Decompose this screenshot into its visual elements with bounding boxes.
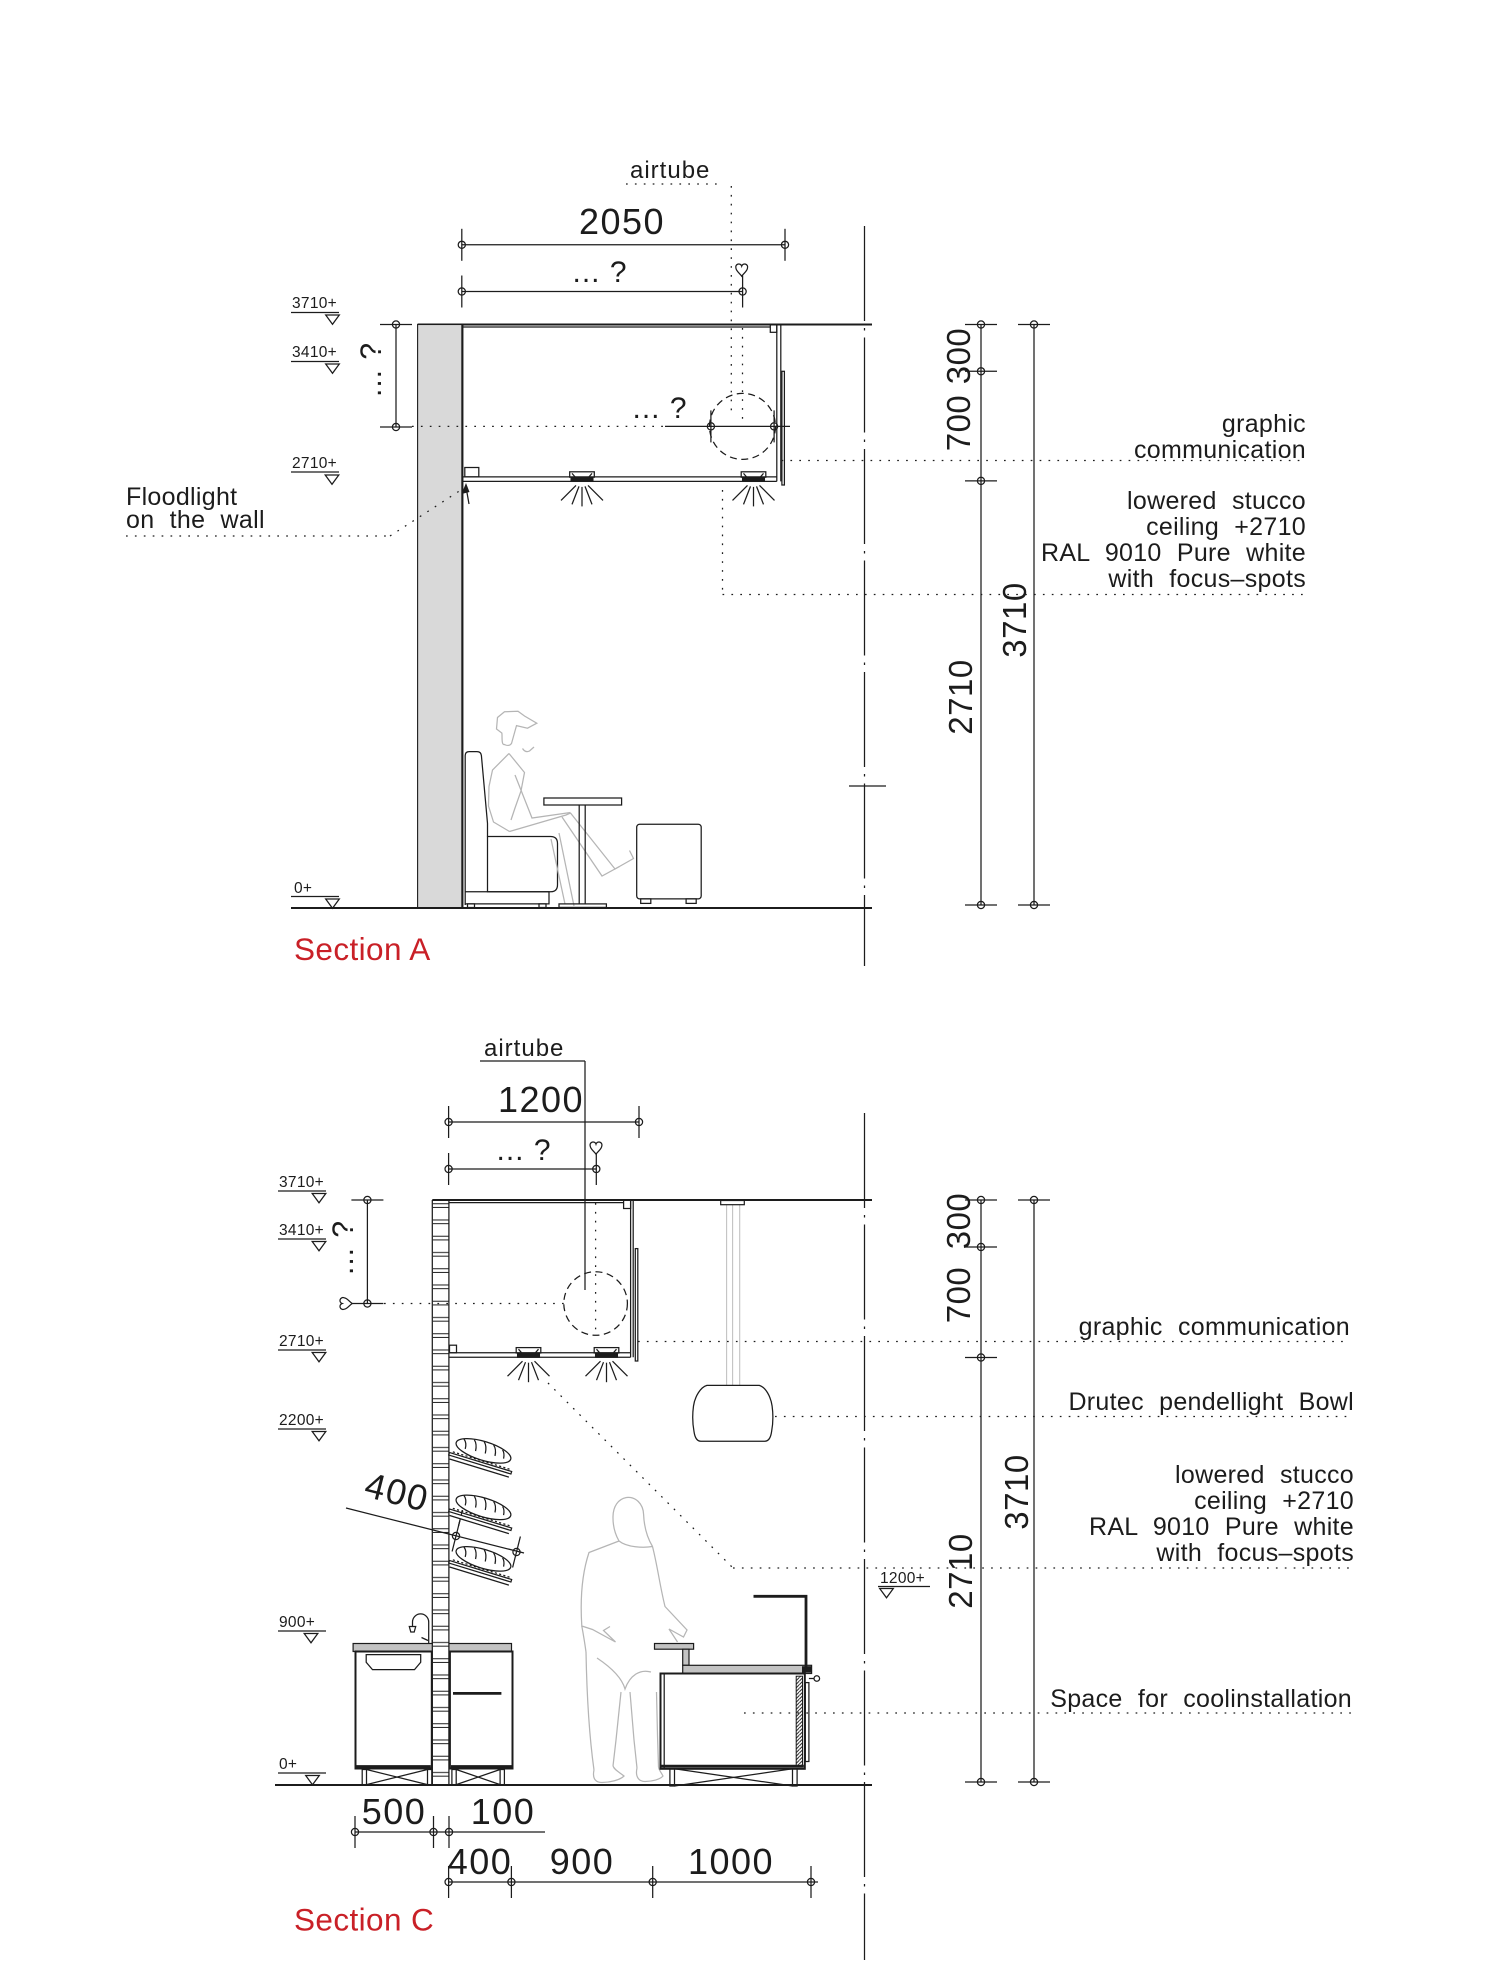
svg-text:0+: 0+	[279, 1756, 297, 1773]
svg-text:lowered stucco: lowered stucco	[1175, 1461, 1354, 1489]
svg-text:300: 300	[940, 328, 977, 385]
svg-text:3710: 3710	[998, 1454, 1035, 1529]
svg-text:graphic communication: graphic communication	[1079, 1313, 1350, 1341]
svg-text:with focus–spots: with focus–spots	[1107, 565, 1306, 593]
svg-text:RAL 9010 Pure white: RAL 9010 Pure white	[1089, 1513, 1354, 1541]
svg-text:2710: 2710	[942, 659, 979, 734]
svg-text:400: 400	[448, 1841, 513, 1882]
svg-text:300: 300	[940, 1193, 977, 1250]
svg-text:graphic: graphic	[1222, 410, 1306, 438]
svg-text:... ?: ... ?	[496, 1134, 551, 1167]
svg-text:... ?: ... ?	[327, 1220, 360, 1275]
svg-text:1200: 1200	[498, 1079, 584, 1120]
svg-text:Section A: Section A	[294, 931, 431, 967]
svg-text:... ?: ... ?	[632, 392, 687, 425]
svg-text:lowered stucco: lowered stucco	[1127, 487, 1306, 515]
svg-text:3710+: 3710+	[279, 1174, 324, 1191]
svg-text:1200+: 1200+	[880, 1570, 925, 1587]
svg-text:2200+: 2200+	[279, 1412, 324, 1429]
svg-text:Section C: Section C	[294, 1902, 434, 1938]
svg-text:on the wall: on the wall	[126, 506, 265, 534]
svg-text:... ?: ... ?	[572, 256, 627, 289]
svg-text:3410+: 3410+	[292, 344, 337, 361]
svg-text:2710+: 2710+	[279, 1333, 324, 1350]
svg-text:airtube: airtube	[484, 1035, 564, 1062]
svg-text:2710+: 2710+	[292, 455, 337, 472]
svg-text:airtube: airtube	[630, 157, 710, 184]
svg-text:2050: 2050	[579, 201, 665, 242]
svg-text:Space for coolinstallation: Space for coolinstallation	[1050, 1685, 1352, 1713]
svg-text:communication: communication	[1134, 436, 1306, 464]
svg-text:1000: 1000	[688, 1841, 774, 1882]
svg-text:2710: 2710	[942, 1533, 979, 1608]
svg-text:100: 100	[471, 1791, 536, 1832]
svg-text:700: 700	[940, 1267, 977, 1324]
svg-text:500: 500	[362, 1791, 427, 1832]
svg-text:3710+: 3710+	[292, 295, 337, 312]
svg-text:RAL 9010 Pure white: RAL 9010 Pure white	[1041, 539, 1306, 567]
svg-text:3710: 3710	[996, 582, 1033, 657]
svg-text:400: 400	[361, 1464, 434, 1520]
svg-text:0+: 0+	[294, 880, 312, 897]
svg-text:700: 700	[940, 395, 977, 452]
svg-text:ceiling +2710: ceiling +2710	[1194, 1487, 1354, 1515]
svg-text:Drutec pendellight Bowl: Drutec pendellight Bowl	[1068, 1388, 1354, 1416]
svg-text:3410+: 3410+	[279, 1222, 324, 1239]
svg-text:900+: 900+	[279, 1614, 315, 1631]
svg-text:... ?: ... ?	[355, 342, 388, 397]
svg-text:with focus–spots: with focus–spots	[1155, 1539, 1354, 1567]
svg-text:ceiling +2710: ceiling +2710	[1146, 513, 1306, 541]
svg-text:900: 900	[550, 1841, 615, 1882]
